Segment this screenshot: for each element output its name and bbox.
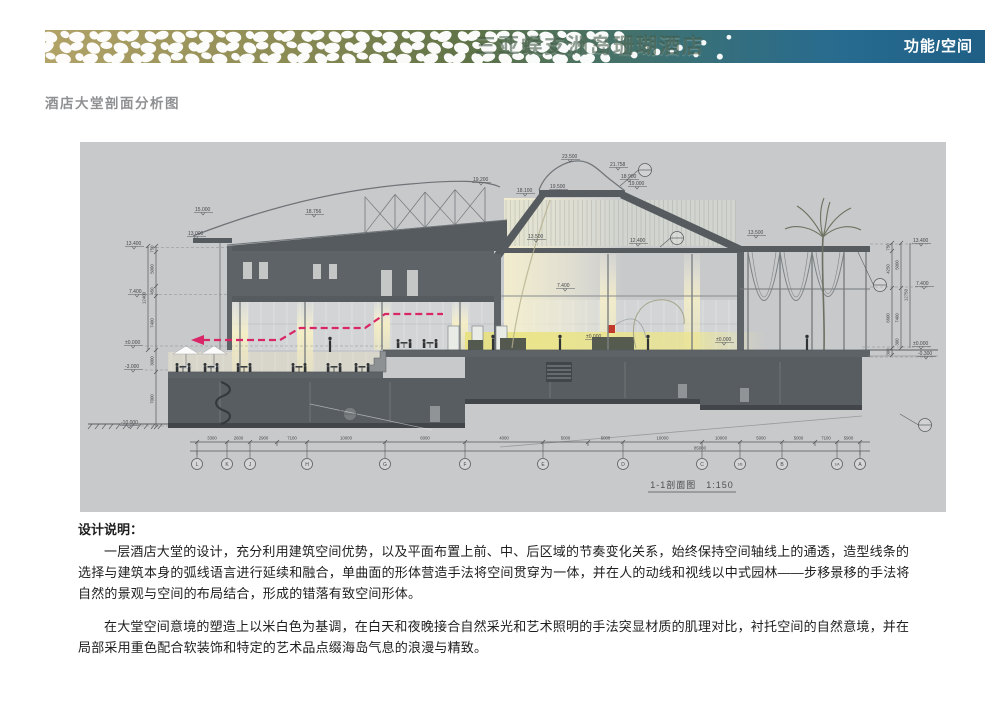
svg-text:10000: 10000 [340,436,353,441]
brand-title: 三亚蜈支洲岛珊瑚酒店 [475,30,705,63]
svg-text:G: G [383,462,387,468]
svg-text:7000: 7000 [150,394,155,404]
svg-text:18.756: 18.756 [306,209,322,215]
svg-text:13.500: 13.500 [528,234,544,240]
svg-text:F: F [463,462,466,468]
svg-text:D: D [621,462,625,468]
svg-text:7.400: 7.400 [916,281,929,287]
left-wall [227,246,232,350]
page-tag: 功能/空间 [904,30,973,63]
svg-text:±0.000: ±0.000 [586,334,601,340]
svg-text:18.100: 18.100 [517,188,533,194]
svg-text:C: C [700,462,704,468]
svg-text:6000: 6000 [420,436,430,441]
svg-text:H: H [305,462,309,468]
svg-text:1/A: 1/A [834,463,840,467]
svg-text:5000: 5000 [150,264,155,274]
section-drawing-figure: 1-1剖面图 1:150 13.4007.400±0.000-3.000-10.… [80,142,946,512]
svg-text:3000: 3000 [150,356,155,366]
svg-text:2600: 2600 [234,436,244,441]
svg-text:13.000: 13.000 [188,231,204,237]
svg-text:4250: 4250 [886,264,891,274]
svg-text:7100: 7100 [287,436,297,441]
svg-text:7100: 7100 [821,436,831,441]
svg-text:±0.000: ±0.000 [913,341,928,347]
svg-text:7400: 7400 [895,313,900,323]
red-art-piece [608,325,615,333]
svg-text:12750: 12750 [904,288,909,301]
svg-text:13.400: 13.400 [126,241,142,247]
svg-text:5000: 5000 [601,436,611,441]
bar-counter [468,340,483,350]
svg-text:-10.000: -10.000 [121,420,138,426]
terrace-slab [168,372,383,378]
svg-text:1/B: 1/B [737,463,743,467]
svg-text:300: 300 [895,338,900,346]
svg-text:15.000: 15.000 [195,207,211,213]
svg-text:-0.300: -0.300 [918,351,932,357]
ground-floor-slab [383,350,870,357]
section-heading: 酒店大堂剖面分析图 [45,92,180,112]
svg-text:10000: 10000 [715,436,728,441]
svg-text:5000: 5000 [895,260,900,270]
svg-text:12.400: 12.400 [630,238,646,244]
drawing-canvas: 1-1剖面图 1:150 13.4007.400±0.000-3.000-10.… [80,142,946,512]
notes-paragraph-1: 一层酒店大堂的设计，充分利用建筑空间优势，以及平面布置上前、中、后区域的节奏变化… [78,541,914,604]
svg-text:13.400: 13.400 [913,238,929,244]
gable-flat-top [539,190,625,197]
svg-text:23.500: 23.500 [562,154,578,160]
notes-heading: 设计说明： [78,519,914,540]
tie-beam-12400 [501,248,740,253]
svg-text:5000: 5000 [756,436,766,441]
svg-text:750: 750 [150,245,155,253]
svg-text:450: 450 [150,287,155,295]
notes-paragraph-2: 在大堂空间意境的塑造上以米白色为基调，在白天和夜晚接合自然采光和艺术照明的手法突… [78,616,914,658]
svg-text:19.200: 19.200 [473,177,489,183]
svg-text:85000: 85000 [694,446,707,451]
basement-right [700,357,862,409]
slide-page: { "header": { "brand_title": "三亚蜈支洲岛珊瑚酒店… [0,0,992,702]
basement-left [168,378,465,426]
louver-grille [546,362,572,382]
pergola-beam [740,246,870,252]
svg-text:7.400: 7.400 [129,289,142,295]
svg-text:750: 750 [886,243,891,251]
svg-text:19.000: 19.000 [629,181,645,187]
svg-text:7400: 7400 [150,318,155,328]
svg-text:300: 300 [886,348,891,356]
svg-text:5000: 5000 [794,436,804,441]
svg-text:13.500: 13.500 [748,230,764,236]
svg-text:7.400: 7.400 [557,283,570,289]
svg-text:±0.000: ±0.000 [716,337,731,343]
svg-text:21.758: 21.758 [610,162,626,168]
svg-text:18.900: 18.900 [621,174,637,180]
design-notes: 设计说明： 一层酒店大堂的设计，充分利用建筑空间优势，以及平面布置上前、中、后区… [78,519,914,670]
svg-text:5000: 5000 [561,436,571,441]
svg-text:19.500: 19.500 [550,184,566,190]
svg-text:-3.000: -3.000 [125,364,139,370]
second-floor-band [232,251,494,296]
svg-text:5900: 5900 [844,436,854,441]
svg-text:10000: 10000 [657,436,670,441]
svg-text:2900: 2900 [259,436,269,441]
basement-middle [465,357,700,403]
header-bar: 三亚蜈支洲岛珊瑚酒店 功能/空间 [45,30,985,63]
floor-slab-7400 [232,296,494,302]
svg-text:4000: 4000 [499,436,509,441]
svg-text:L: L [196,462,199,468]
left-canopy [193,238,232,243]
svg-text:12400: 12400 [142,291,147,304]
svg-text:3300: 3300 [207,436,217,441]
svg-text:±0.000: ±0.000 [125,340,140,346]
svg-text:6600: 6600 [886,313,891,323]
drawing-title-label: 1-1剖面图 1:150 [650,479,734,490]
